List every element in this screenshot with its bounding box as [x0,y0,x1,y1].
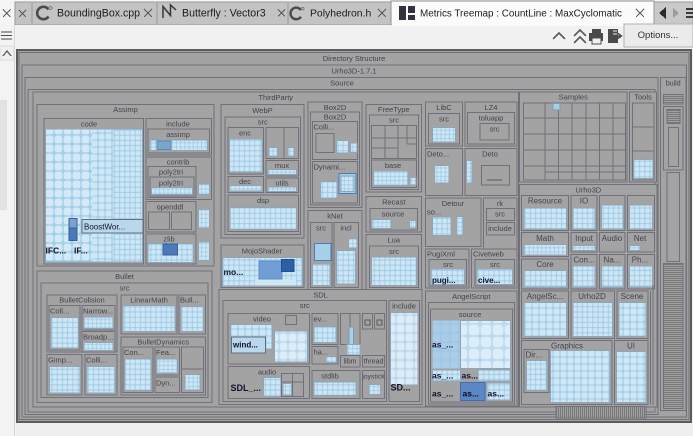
svg-text:include: include [166,120,190,129]
svg-text:poly2tri: poly2tri [159,168,184,177]
svg-text:Math: Math [536,234,554,243]
svg-text:thread: thread [364,359,384,366]
svg-text:Scene: Scene [621,292,644,301]
svg-text:src: src [443,260,453,269]
svg-text:poly2tri: poly2tri [159,179,184,188]
svg-text:toluapp: toluapp [479,114,504,123]
svg-text:AngelScript: AngelScript [452,292,491,301]
svg-text:BoostWor...: BoostWor... [84,223,125,232]
svg-text:incl: incl [340,224,352,233]
svg-text:Polyhedron.h: Polyhedron.h [310,9,371,20]
svg-text:Butterfly : Vector3: Butterfly : Vector3 [182,8,266,20]
svg-text:dsp: dsp [257,196,269,205]
svg-text:src: src [316,224,326,233]
svg-text:wind...: wind... [232,341,258,350]
svg-text:LibC: LibC [436,103,452,112]
svg-text:zlib: zlib [163,235,174,244]
svg-text:Resource: Resource [528,197,563,206]
svg-text:Box2D: Box2D [324,113,347,122]
svg-text:source: source [459,310,482,319]
svg-text:Options...: Options... [638,30,679,41]
svg-text:libm: libm [344,359,357,366]
svg-text:Core: Core [536,260,554,269]
svg-text:IFC...: IFC... [46,246,67,256]
svg-text:SDL: SDL [313,291,328,300]
svg-text:Box2D: Box2D [324,103,347,112]
svg-text:utils: utils [275,179,289,188]
svg-text:code: code [81,120,97,129]
svg-text:ev...: ev... [314,315,328,324]
svg-text:Ph...: Ph... [632,256,648,265]
svg-text:src: src [120,284,130,293]
svg-text:Assimp: Assimp [113,105,138,114]
svg-text:Gimp...: Gimp... [48,356,72,365]
svg-text:Fea...: Fea... [156,348,175,357]
svg-text:mo...: mo... [224,267,244,277]
svg-text:Audio: Audio [602,234,623,243]
svg-text:MojoShader: MojoShader [242,247,283,256]
svg-text:SD...: SD... [391,383,411,393]
svg-text:as_...: as_... [432,340,453,350]
svg-text:UI: UI [627,342,635,351]
svg-text:Broadp...: Broadp... [83,333,113,342]
svg-text:Source: Source [330,79,354,88]
svg-text:BulletColision: BulletColision [59,296,104,305]
svg-text:Samples: Samples [559,93,588,102]
svg-text:include: include [392,302,416,311]
svg-text:joystick: joystick [361,374,385,381]
svg-text:AngelSc...: AngelSc... [527,292,563,301]
svg-text:src: src [300,301,310,310]
svg-text:as...: as... [462,371,479,381]
svg-text:Detour: Detour [442,199,465,208]
svg-text:mux: mux [275,161,289,170]
svg-text:src: src [490,125,500,134]
svg-text:src: src [389,116,399,125]
svg-text:include: include [488,224,512,233]
svg-text:PugiXml: PugiXml [427,250,455,259]
svg-text:as_...: as_... [432,371,453,381]
svg-text:Urho3D-1.7.1: Urho3D-1.7.1 [331,67,376,76]
svg-text:dec: dec [239,177,251,186]
svg-text:src: src [258,118,268,127]
svg-text:Tools: Tools [634,93,652,102]
svg-text:src: src [389,247,399,256]
svg-text:source: source [382,210,405,219]
svg-text:src: src [439,115,449,124]
svg-text:Civetweb: Civetweb [473,250,504,259]
svg-text:as...: as... [488,389,505,399]
svg-text:base: base [385,161,401,170]
svg-text:src: src [490,260,500,269]
svg-text:so...: so... [427,208,441,217]
svg-text:kNet: kNet [327,212,343,221]
svg-text:IF...: IF... [74,246,88,256]
svg-text:as_...: as_... [432,389,453,399]
svg-text:src: src [495,210,505,219]
svg-text:Con...: Con... [573,256,594,265]
svg-text:IO: IO [580,197,588,206]
svg-text:Lua: Lua [387,236,400,245]
svg-text:video: video [253,315,271,324]
svg-text:Recast: Recast [382,198,406,207]
svg-text:as...: as... [463,389,480,399]
svg-text:pugi...: pugi... [432,276,456,285]
svg-text:assimp: assimp [166,130,190,139]
svg-text:Bullet: Bullet [115,272,135,281]
svg-text:Narrow...: Narrow... [83,307,113,316]
svg-text:Colli...: Colli... [86,356,107,365]
svg-text:Colli...: Colli... [314,123,335,132]
svg-text:ThirdParty: ThirdParty [258,93,293,102]
svg-text:BoundingBox.cpp: BoundingBox.cpp [57,8,140,20]
svg-text:Net: Net [634,234,647,243]
svg-text:Bull...: Bull... [180,296,199,305]
svg-text:ha...: ha... [314,348,329,357]
svg-text:Urho3D: Urho3D [575,186,601,195]
svg-text:enc: enc [239,129,251,138]
svg-text:LZ4: LZ4 [485,103,498,112]
svg-text:audio: audio [258,368,276,377]
svg-text:Input: Input [575,234,594,243]
svg-text:FreeType: FreeType [378,105,410,114]
svg-text:LinearMath: LinearMath [130,296,168,305]
svg-text:Dynami...: Dynami... [314,163,346,172]
svg-text:Graphics: Graphics [551,342,583,351]
svg-text:build: build [666,81,681,88]
svg-text:Deto: Deto [482,150,498,159]
svg-text:cive...: cive... [478,276,500,285]
svg-text:Con...: Con... [124,348,144,357]
svg-text:openddl: openddl [157,203,184,212]
svg-text:Na...: Na... [604,256,621,265]
svg-text:SDL_...: SDL_... [231,383,262,393]
svg-text:WebP: WebP [252,106,272,115]
svg-text:Deto...: Deto... [427,150,449,159]
svg-text:Directory Structure: Directory Structure [323,54,386,63]
svg-text:Metrics Treemap : CountLine :: Metrics Treemap : CountLine : MaxCycloma… [420,9,622,20]
svg-text:contrib: contrib [167,158,190,167]
svg-text:BulletDynamics: BulletDynamics [137,338,189,347]
svg-text:Dyn...: Dyn... [156,379,176,388]
svg-text:Coll...: Coll... [50,307,69,316]
svg-text:stdlib: stdlib [321,372,339,381]
svg-text:rk: rk [497,199,503,208]
svg-text:Urho2D: Urho2D [578,292,606,301]
svg-text:Dir...: Dir... [526,351,542,360]
